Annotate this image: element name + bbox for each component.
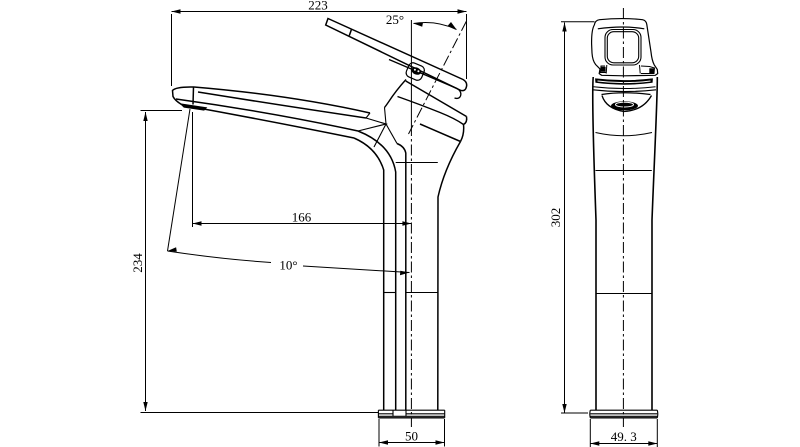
svg-text:234: 234 [130,253,145,273]
svg-text:25°: 25° [386,12,404,27]
svg-text:49. 3: 49. 3 [611,429,637,444]
svg-text:10°: 10° [279,258,297,273]
svg-text:223: 223 [308,0,328,13]
svg-text:50: 50 [405,429,418,444]
svg-text:166: 166 [292,210,312,225]
svg-text:302: 302 [548,208,563,228]
